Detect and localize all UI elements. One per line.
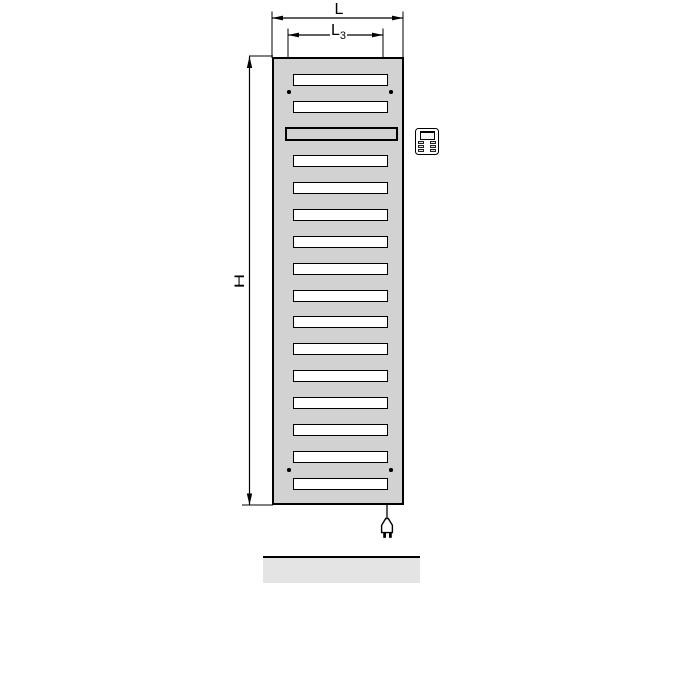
radiator-slot <box>293 316 388 328</box>
radiator-slot <box>293 290 388 302</box>
radiator-slot <box>293 74 388 86</box>
controller-button <box>430 141 436 144</box>
label-inner-width-subscript: 3 <box>340 30 346 42</box>
power-plug-icon <box>382 519 393 538</box>
controller-button <box>418 141 424 144</box>
mount-dot <box>287 90 291 94</box>
controller-button <box>418 149 424 152</box>
dim-h-arrow-bottom <box>247 494 252 506</box>
radiator-slot <box>293 478 388 490</box>
label-inner-width: L3 <box>330 23 347 42</box>
mount-dot <box>389 468 393 472</box>
radiator-slot <box>293 451 388 463</box>
label-overall-width: L <box>331 2 347 18</box>
dim-l3-arrow-right <box>372 33 383 38</box>
dim-l3-arrow-left <box>288 33 299 38</box>
radiator-slot <box>293 370 388 382</box>
radiator-slot <box>293 397 388 409</box>
radiator-slot <box>293 209 388 221</box>
label-height: H <box>226 261 254 301</box>
radiator-slot <box>293 424 388 436</box>
dim-h-arrow-top <box>247 57 252 69</box>
controller-buttons <box>416 141 438 152</box>
radiator-slot <box>293 155 388 167</box>
dim-l-arrow-right <box>392 16 403 21</box>
dim-l-arrow-left <box>272 16 283 21</box>
controller-button <box>430 149 436 152</box>
controller-button <box>430 145 436 148</box>
radiator-slot <box>293 182 388 194</box>
label-inner-width-base: L <box>331 22 340 39</box>
floor-baseboard <box>263 556 420 583</box>
radiator-slot <box>293 263 388 275</box>
controller-button-column-right <box>430 141 436 152</box>
mount-dot <box>287 468 291 472</box>
controller-button-column-left <box>418 141 424 152</box>
radiator-slot <box>293 101 388 113</box>
radiator-body <box>272 57 404 505</box>
mount-dot <box>389 90 393 94</box>
radiator-slot <box>293 343 388 355</box>
diagram-canvas: L L3 H <box>0 0 700 700</box>
controller-button <box>418 145 424 148</box>
thermostat-controller-icon <box>415 128 439 155</box>
radiator-slot <box>293 236 388 248</box>
radiator-cover-slot <box>285 127 398 141</box>
controller-display <box>420 131 435 140</box>
